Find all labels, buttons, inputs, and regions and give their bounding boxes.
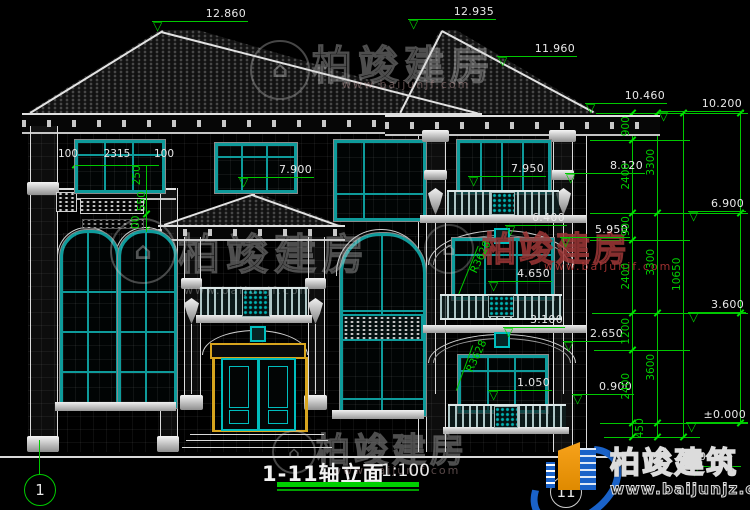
dim-inner-0: 900 — [621, 104, 632, 148]
dim-chain-middle — [657, 113, 658, 437]
watermark-logo-icon: ⌂ — [110, 218, 176, 284]
dim-middle-0: 3300 — [646, 140, 657, 184]
bayC-sill — [332, 410, 424, 419]
axis-bubble-1: 1 — [24, 474, 56, 506]
left-pilaster — [30, 126, 58, 452]
level-floor1-window: 1.050▽ — [488, 374, 552, 391]
windim-left: 100 — [54, 148, 78, 160]
right-column-left-band — [424, 170, 447, 180]
mid-pilaster-base — [157, 436, 179, 452]
left-pilaster-base — [27, 436, 59, 452]
level-floor2-window: 4.650▽ — [488, 265, 552, 282]
windim-width: 2315 — [98, 148, 136, 160]
door-leaf-left — [221, 358, 259, 431]
level-parapet-out: 10.200▽ — [658, 95, 744, 112]
porch-base-left — [180, 395, 203, 410]
watermark-brand: 柏竣建房 — [178, 234, 370, 276]
right-column-right-capital — [549, 130, 576, 142]
level-floor3-window: 7.950▽ — [468, 160, 546, 177]
dim-chain-outer — [683, 113, 684, 437]
level-ground: ±0.000▽ — [686, 406, 748, 423]
drawing-scale: 1:100 — [381, 461, 430, 481]
windim-right: 100 — [154, 148, 180, 160]
door-leaf-right — [258, 358, 296, 431]
bayD-floor1-ornament — [494, 406, 518, 428]
level-floor1-out: 3.600▽ — [688, 296, 746, 313]
company-logo: 柏竣建筑 www.baijunjz.com — [518, 436, 750, 510]
right-column-left-capital — [422, 130, 449, 142]
level-eave-right: 10.460▽ — [585, 87, 667, 104]
left-pilaster-capital — [27, 182, 59, 195]
dim-inner-4: 1200 — [621, 309, 632, 353]
watermark-url: www.baijunjf.com — [342, 78, 470, 91]
title-underline — [277, 482, 419, 487]
bayC-ornament-band — [341, 314, 423, 341]
watermark-url: www.baijunjf.com — [184, 284, 312, 297]
level-ridge-left: 12.860▽ — [152, 5, 248, 22]
elevation-drawing: 12.860▽ 12.935▽ 11.960▽ 10.460▽ 10.200▽ … — [0, 0, 750, 510]
windim-sub: 00 — [131, 200, 142, 244]
level-balcony3: 6.400▽ — [505, 209, 567, 226]
dim-middle-1: 3300 — [646, 240, 657, 284]
bayC-upper-window — [334, 140, 426, 221]
title-underline-thin — [277, 489, 419, 491]
logo-checker-icon — [546, 462, 555, 488]
watermark-logo-icon: ⌂ — [424, 224, 474, 274]
bayA-sill-1 — [55, 402, 118, 411]
dim-middle-2: 3600 — [646, 345, 657, 389]
watermark-logo-icon: ⌂ — [250, 40, 310, 100]
dim-inner-1: 2400 — [621, 154, 632, 198]
level-column-top: 8.120▽ — [565, 157, 645, 174]
level-floor2-out: 6.900▽ — [688, 195, 746, 212]
dim-inner-5: 2400 — [621, 364, 632, 408]
logo-brand-text: 柏竣建筑 — [610, 438, 738, 482]
logo-building-blue-icon — [580, 448, 596, 490]
door-keystone — [250, 326, 266, 342]
logo-url-text: www.baijunjz.com — [610, 480, 750, 498]
level-roof-mid: 11.960▽ — [497, 40, 577, 57]
right-block-right-wall — [586, 130, 587, 452]
level-arch1-top: 2.650▽ — [563, 325, 625, 342]
dim-inner-2: 900 — [621, 204, 632, 248]
logo-building-orange-icon — [558, 442, 580, 490]
level-ridge-right: 12.935▽ — [408, 3, 496, 20]
level-balcony2: 3.100▽ — [503, 311, 565, 328]
dim-inner-3: 2400 — [621, 254, 632, 298]
dim-total: 10650 — [672, 252, 683, 296]
left-emblem — [56, 192, 77, 212]
bayA-sill-2 — [113, 402, 176, 411]
level-porch-ridge: 7.900▽ — [238, 161, 314, 178]
dim-edge-line — [740, 113, 741, 423]
level-triangle-icon: ▽ — [153, 21, 162, 31]
